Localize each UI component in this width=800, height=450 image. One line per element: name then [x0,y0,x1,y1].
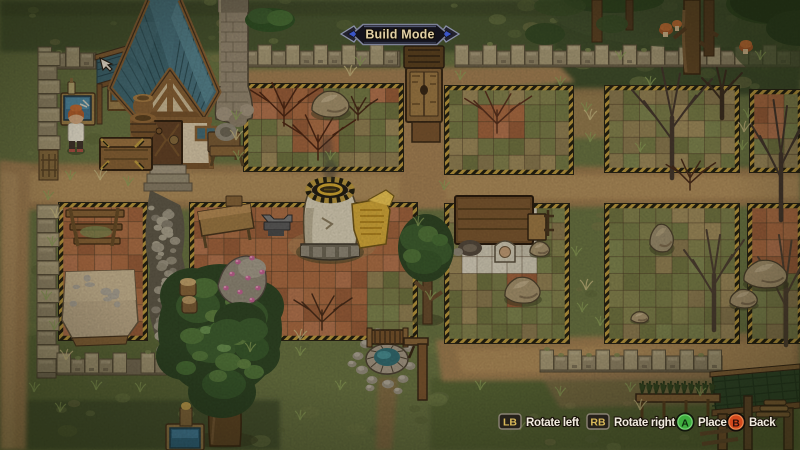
svg-text:Place: Place [698,417,727,429]
svg-text:Build Mode: Build Mode [365,28,434,42]
svg-text:LB: LB [503,417,517,429]
svg-text:A: A [681,418,689,430]
svg-text:RB: RB [590,417,606,429]
svg-text:Rotate left: Rotate left [526,417,579,429]
svg-text:Rotate right: Rotate right [614,417,675,429]
svg-text:B: B [732,418,740,430]
svg-text:Back: Back [749,417,776,429]
